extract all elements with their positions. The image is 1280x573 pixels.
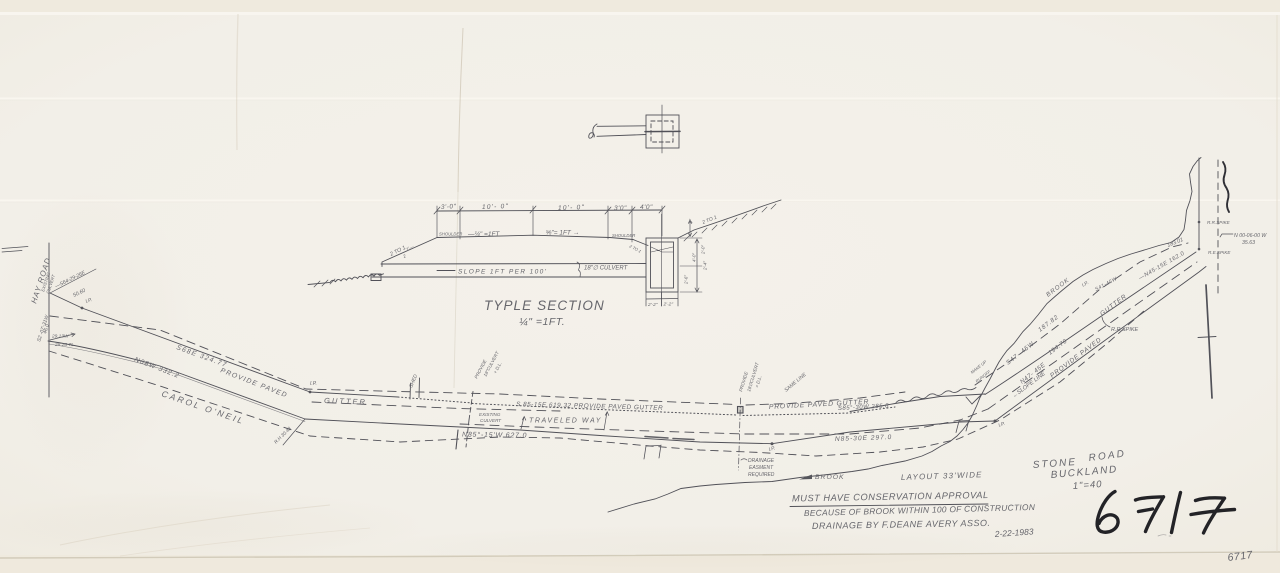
svg-text:DRAINAGE: DRAINAGE — [748, 458, 775, 464]
svg-text:REQUIRED: REQUIRED — [748, 472, 775, 478]
svg-text:3'0": 3'0" — [614, 205, 627, 212]
svg-text:SHOULDER: SHOULDER — [439, 232, 462, 237]
svg-text:BROOK: BROOK — [815, 474, 845, 481]
svg-text:R.R.SPIKE: R.R.SPIKE — [1111, 327, 1139, 333]
svg-text:3'-0": 3'-0" — [441, 203, 457, 211]
svg-text:R.E.SPIKE: R.E.SPIKE — [1208, 250, 1231, 255]
svg-text:2'-2": 2'-2" — [647, 302, 658, 308]
svg-text:TYPLE SECTION: TYPLE SECTION — [484, 298, 605, 313]
svg-text:2'-4": 2'-4" — [703, 261, 708, 271]
svg-text:I.P.: I.P. — [310, 381, 317, 387]
svg-text:⅝"= 1FT →: ⅝"= 1FT → — [546, 230, 579, 237]
svg-text:—¼" =1FT: —¼" =1FT — [467, 231, 500, 238]
svg-text:18"∅ CULVERT: 18"∅ CULVERT — [584, 265, 629, 272]
svg-text:10'- 0": 10'- 0" — [482, 203, 509, 211]
svg-text:EXISTING: EXISTING — [479, 412, 501, 417]
svg-text:35.63: 35.63 — [1242, 240, 1255, 246]
svg-text:GUTTER: GUTTER — [324, 396, 367, 406]
svg-text:CULVERT: CULVERT — [480, 418, 502, 423]
svg-text:¼" =1FT.: ¼" =1FT. — [519, 316, 565, 328]
svg-text:SLOPE 1FT PER 100': SLOPE 1FT PER 100' — [458, 269, 547, 276]
svg-text:SHOULDER: SHOULDER — [612, 233, 635, 238]
svg-text:N 00-06-00 W: N 00-06-00 W — [1234, 233, 1267, 239]
svg-text:R.R.SPIKE: R.R.SPIKE — [1207, 220, 1231, 225]
svg-text:EASMENT: EASMENT — [749, 465, 774, 471]
svg-text:10'- 0": 10'- 0" — [558, 204, 585, 212]
svg-text:1"=40: 1"=40 — [1072, 479, 1102, 492]
svg-text:4'-0": 4'-0" — [692, 253, 697, 262]
svg-text:4'0": 4'0" — [640, 204, 653, 211]
svg-text:28.28 TL: 28.28 TL — [54, 342, 74, 348]
svg-text:N85°-15'W 627.0: N85°-15'W 627.0 — [462, 431, 527, 440]
svg-text:2'-6": 2'-6" — [684, 275, 689, 285]
svg-text:TRAVELED WAY: TRAVELED WAY — [529, 418, 602, 425]
svg-text:2'-2": 2'-2" — [663, 302, 674, 308]
svg-text:2'-0": 2'-0" — [701, 245, 706, 255]
svg-text:29.13W: 29.13W — [51, 334, 69, 340]
